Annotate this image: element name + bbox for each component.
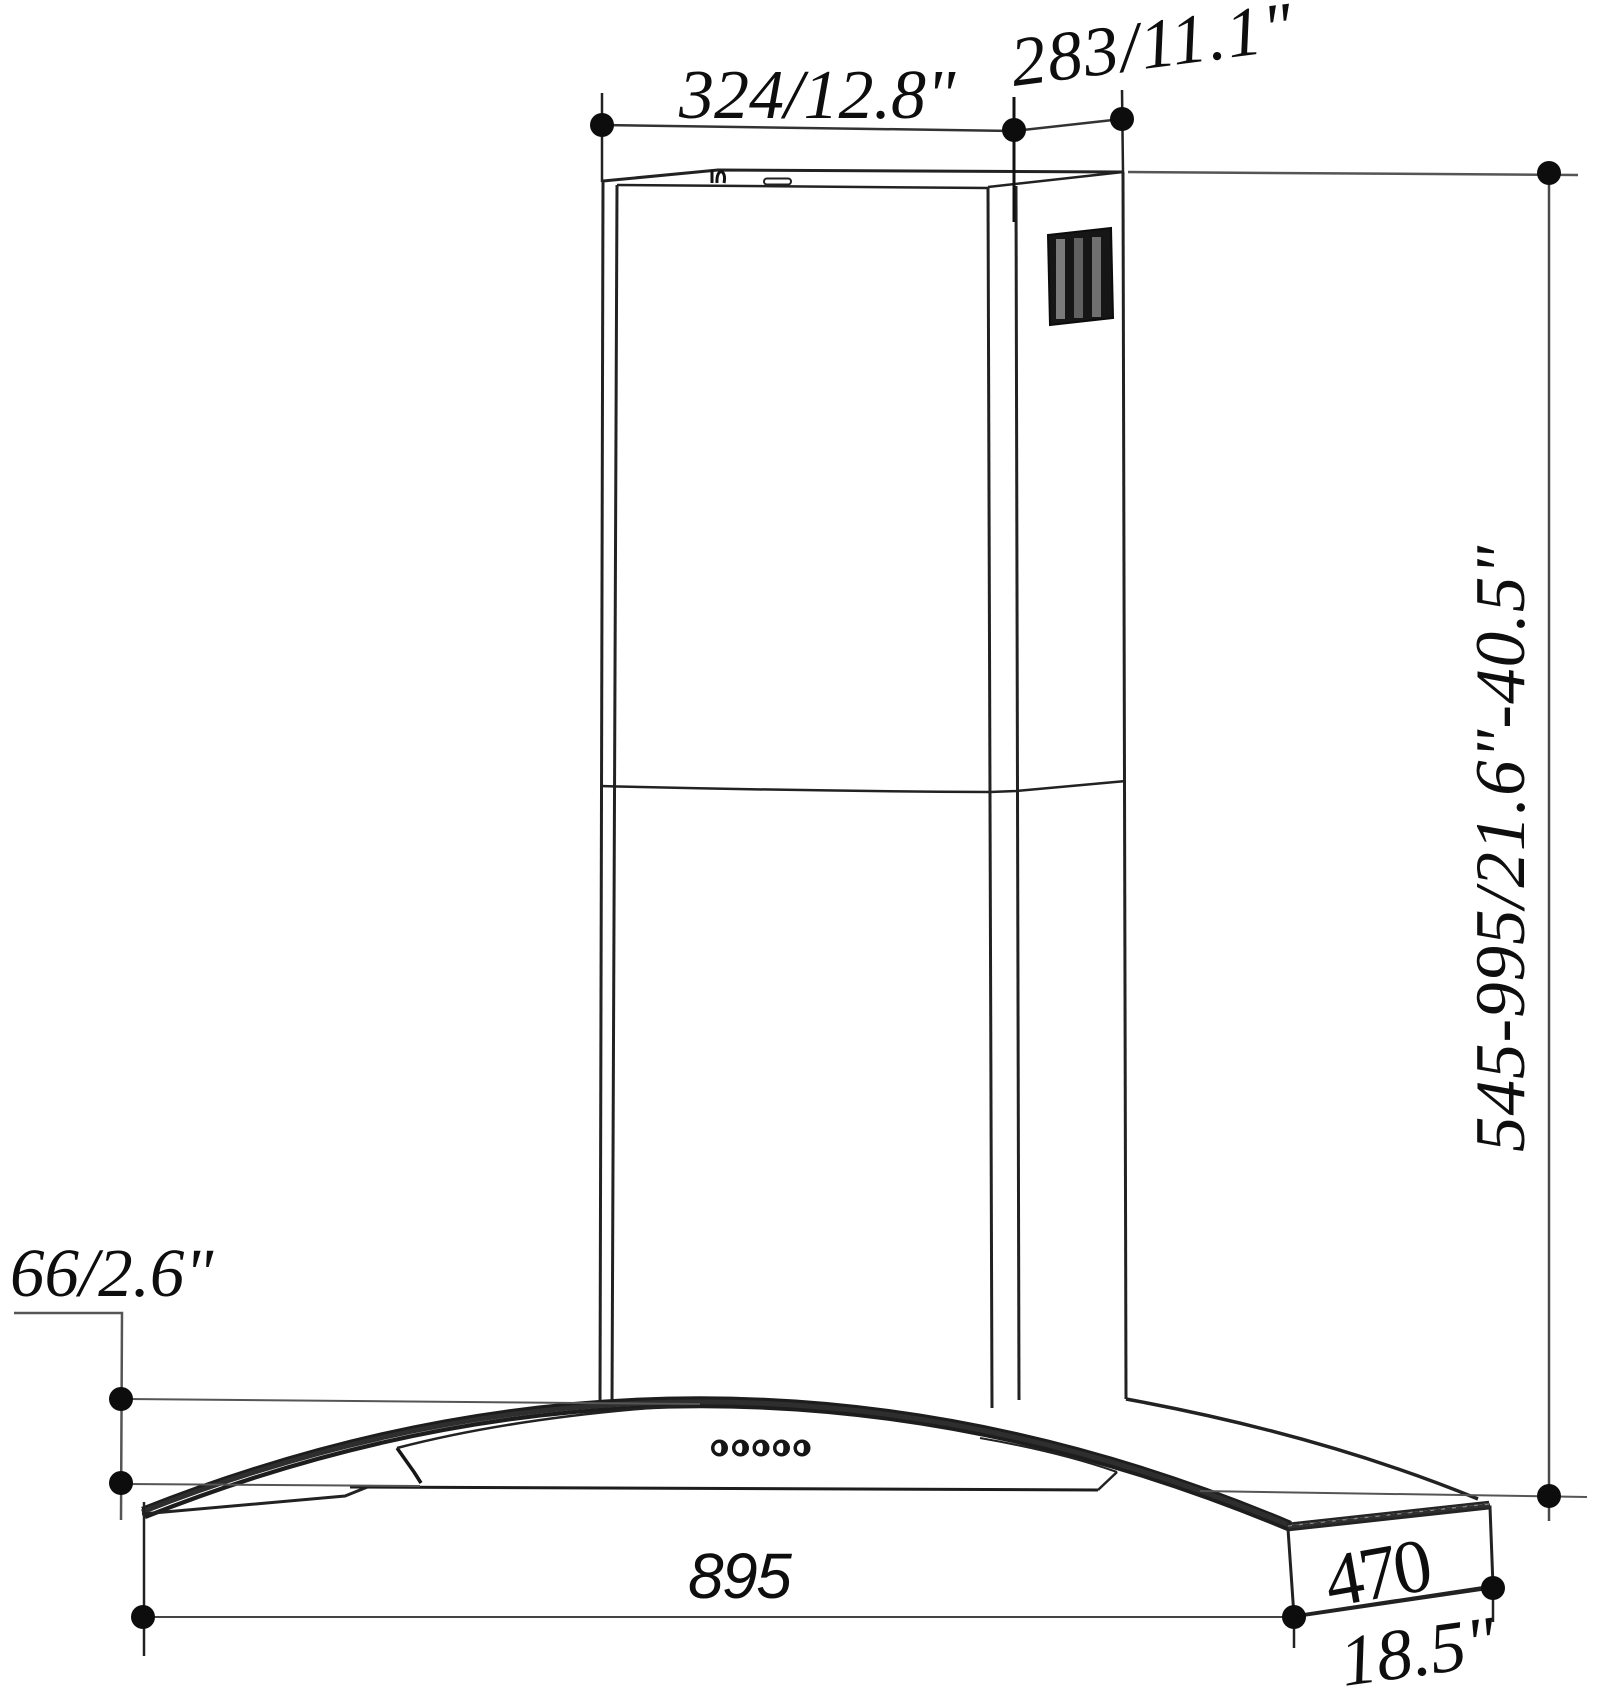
svg-text:66/2.6": 66/2.6"	[10, 1235, 214, 1311]
svg-text:895: 895	[688, 1540, 792, 1612]
svg-text:470: 470	[1318, 1523, 1436, 1624]
svg-text:324/12.8": 324/12.8"	[678, 57, 956, 134]
svg-text:545-995/21.6"-40.5": 545-995/21.6"-40.5"	[1462, 545, 1540, 1152]
